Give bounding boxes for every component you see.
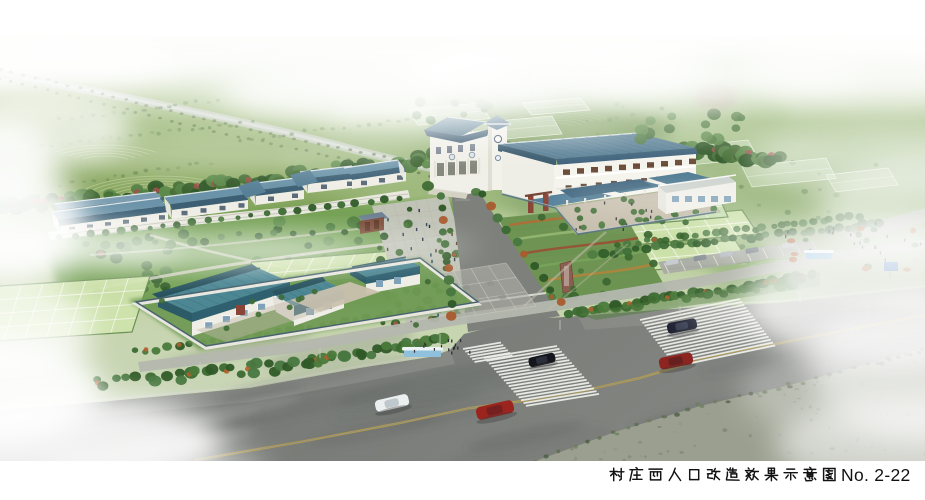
svg-text:No. 2-22: No. 2-22 bbox=[841, 465, 911, 485]
